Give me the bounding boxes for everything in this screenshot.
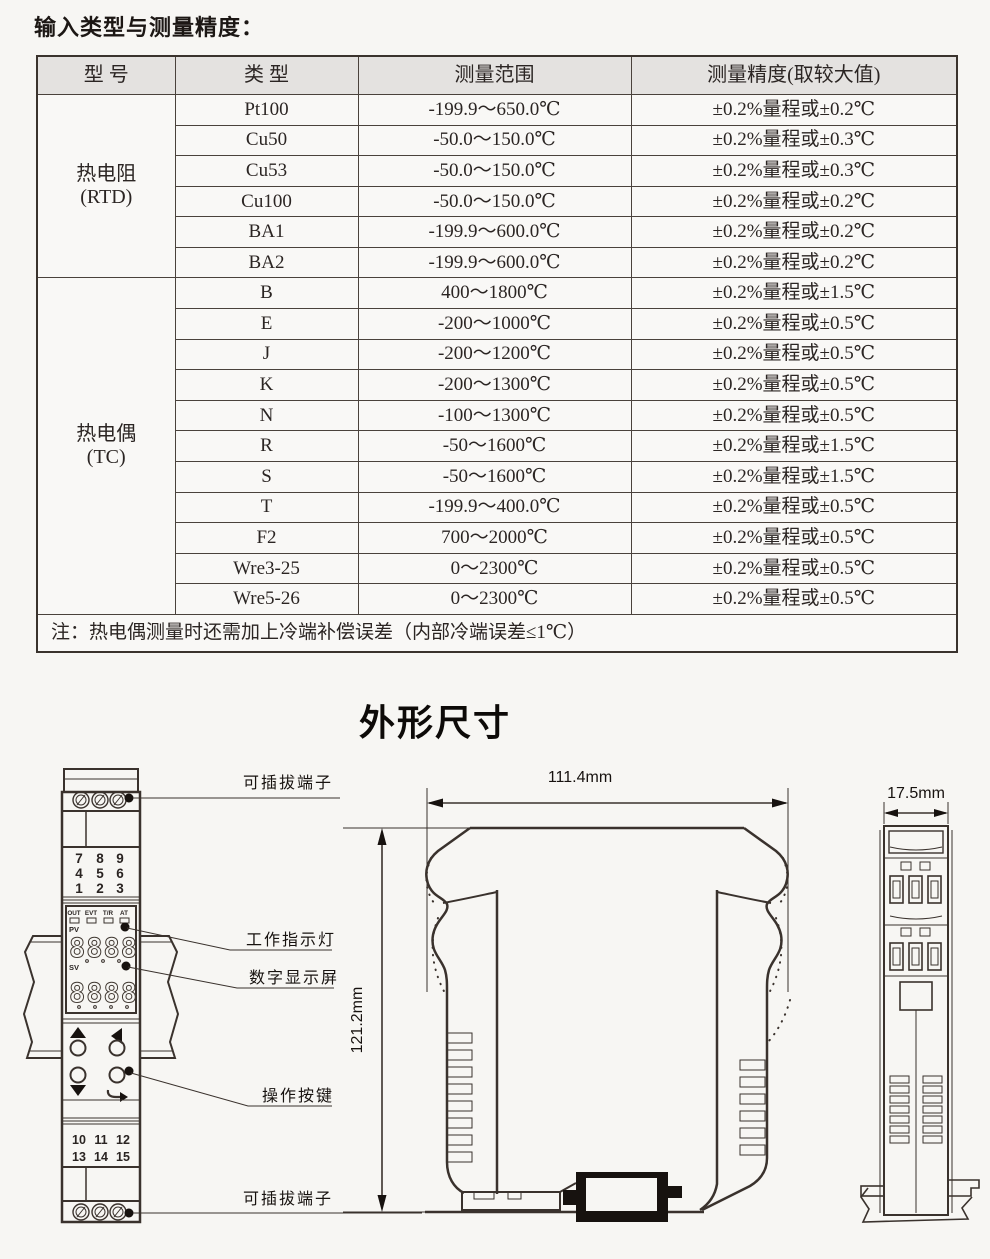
callout-label: 工作指示灯 xyxy=(246,931,336,949)
terminal-number: 10 xyxy=(72,1133,86,1147)
callout-label: 可插拔端子 xyxy=(243,1190,333,1208)
dotted-mould-lines xyxy=(426,858,790,1042)
depth-dimension: 17.5mm xyxy=(884,785,948,824)
terminal-number-block-bottom: 10 11 12 13 14 15 xyxy=(72,1133,130,1164)
dimension-arrow xyxy=(378,828,387,845)
screw-icon xyxy=(110,792,126,808)
led-indicator xyxy=(120,918,129,923)
terminal-number: 3 xyxy=(116,881,124,896)
top-view-drawing: 111.4mm 121.2mm xyxy=(343,769,790,1222)
hatch-band xyxy=(62,1100,140,1124)
terminal-number: 6 xyxy=(116,866,124,881)
left-mounting-wing xyxy=(24,936,62,1058)
terminal-slot xyxy=(901,862,911,870)
button-panel xyxy=(70,1027,134,1102)
width-dimension: 111.4mm xyxy=(427,769,788,992)
led-indicator xyxy=(87,918,96,923)
right-mounting-wing xyxy=(140,936,178,1058)
lower-housing-section xyxy=(62,1167,140,1201)
screw-icon xyxy=(73,792,89,808)
height-dim-label: 121.2mm xyxy=(349,987,366,1054)
terminal-number: 7 xyxy=(75,851,83,866)
hatch-band xyxy=(62,897,140,903)
left-button xyxy=(110,1041,125,1056)
up-arrow-icon xyxy=(70,1027,86,1038)
side-view-drawing: 17.5mm xyxy=(861,785,979,1222)
upper-housing-section xyxy=(62,811,140,847)
dimension-drawing: 7 8 9 4 5 6 1 2 3 OUT EVT T/R AT PV 8 xyxy=(0,0,990,1259)
terminal-number: 4 xyxy=(75,866,83,881)
terminal-slot xyxy=(901,928,911,936)
terminal-number: 12 xyxy=(116,1133,130,1147)
vent-slots-left xyxy=(447,1033,472,1162)
din-clip xyxy=(563,1172,682,1222)
led-label: AT xyxy=(120,910,128,917)
terminal-number-block-top: 7 8 9 4 5 6 1 2 3 xyxy=(75,851,124,896)
terminal-number: 9 xyxy=(116,851,124,866)
bottom-terminal-strip xyxy=(73,1204,134,1220)
terminal-slot xyxy=(920,862,930,870)
leader-anchor-dot xyxy=(121,923,130,932)
down-button xyxy=(71,1068,86,1083)
leader-anchor-dot xyxy=(125,1067,134,1076)
latch xyxy=(900,982,932,1010)
led-label: EVT xyxy=(85,910,97,917)
callout-buttons: 操作按键 xyxy=(131,1073,334,1106)
dimension-arrow xyxy=(884,809,898,817)
callout-plug-terminal-bottom: 可插拔端子 xyxy=(133,1190,422,1213)
leader-anchor-dot xyxy=(125,1209,134,1218)
callout-plug-terminal-top: 可插拔端子 xyxy=(133,774,340,798)
led-indicator xyxy=(70,918,79,923)
terminal-number: 14 xyxy=(94,1150,108,1164)
width-dim-label: 111.4mm xyxy=(548,769,612,786)
screw-icon xyxy=(73,1204,89,1220)
terminal-number: 11 xyxy=(94,1133,107,1147)
terminal-number: 15 xyxy=(116,1150,130,1164)
callout-indicator: 工作指示灯 xyxy=(127,928,336,950)
top-terminal-strip xyxy=(62,792,140,811)
up-button xyxy=(71,1041,86,1056)
screw-icon xyxy=(110,1204,126,1220)
callout-display: 数字显示屏 xyxy=(128,967,339,988)
base-bracket xyxy=(462,1183,576,1210)
enter-button xyxy=(110,1068,125,1083)
return-arrow-icon xyxy=(108,1090,121,1097)
led-label: OUT xyxy=(67,910,80,917)
screw-icon xyxy=(92,792,108,808)
vent-slots-right xyxy=(740,1060,765,1155)
housing-profile xyxy=(425,828,790,1222)
display-panel: OUT EVT T/R AT PV 8888 SV 8888 xyxy=(66,906,138,1013)
led-label: T/R xyxy=(103,910,114,917)
callout-label: 可插拔端子 xyxy=(243,774,333,792)
side-housing xyxy=(861,826,979,1222)
terminal-slot xyxy=(920,928,930,936)
dimension-arrow xyxy=(772,799,788,808)
leader-anchor-dot xyxy=(125,794,134,803)
leader-anchor-dot xyxy=(122,962,131,971)
screw-icon xyxy=(92,1204,108,1220)
terminal-block xyxy=(890,876,941,903)
front-view-drawing: 7 8 9 4 5 6 1 2 3 OUT EVT T/R AT PV 8 xyxy=(24,769,178,1222)
dimension-arrow xyxy=(934,809,948,817)
terminal-number: 2 xyxy=(96,881,104,896)
callout-label: 操作按键 xyxy=(262,1087,334,1105)
led-indicator xyxy=(104,918,113,923)
down-arrow-icon xyxy=(70,1085,86,1096)
callout-label: 数字显示屏 xyxy=(249,969,339,987)
terminal-number: 1 xyxy=(75,881,83,896)
terminal-block xyxy=(890,943,941,970)
terminal-number: 13 xyxy=(72,1150,86,1164)
terminal-number: 8 xyxy=(96,851,104,866)
top-cap xyxy=(64,769,138,792)
dimension-arrow xyxy=(378,1195,387,1212)
height-dimension: 121.2mm xyxy=(343,828,470,1212)
seven-segment-sv: 8888 xyxy=(69,978,138,1009)
terminal-number: 5 xyxy=(96,866,104,881)
depth-dim-label: 17.5mm xyxy=(887,785,945,802)
dimension-arrow xyxy=(427,799,443,808)
sv-label: SV xyxy=(69,963,79,972)
